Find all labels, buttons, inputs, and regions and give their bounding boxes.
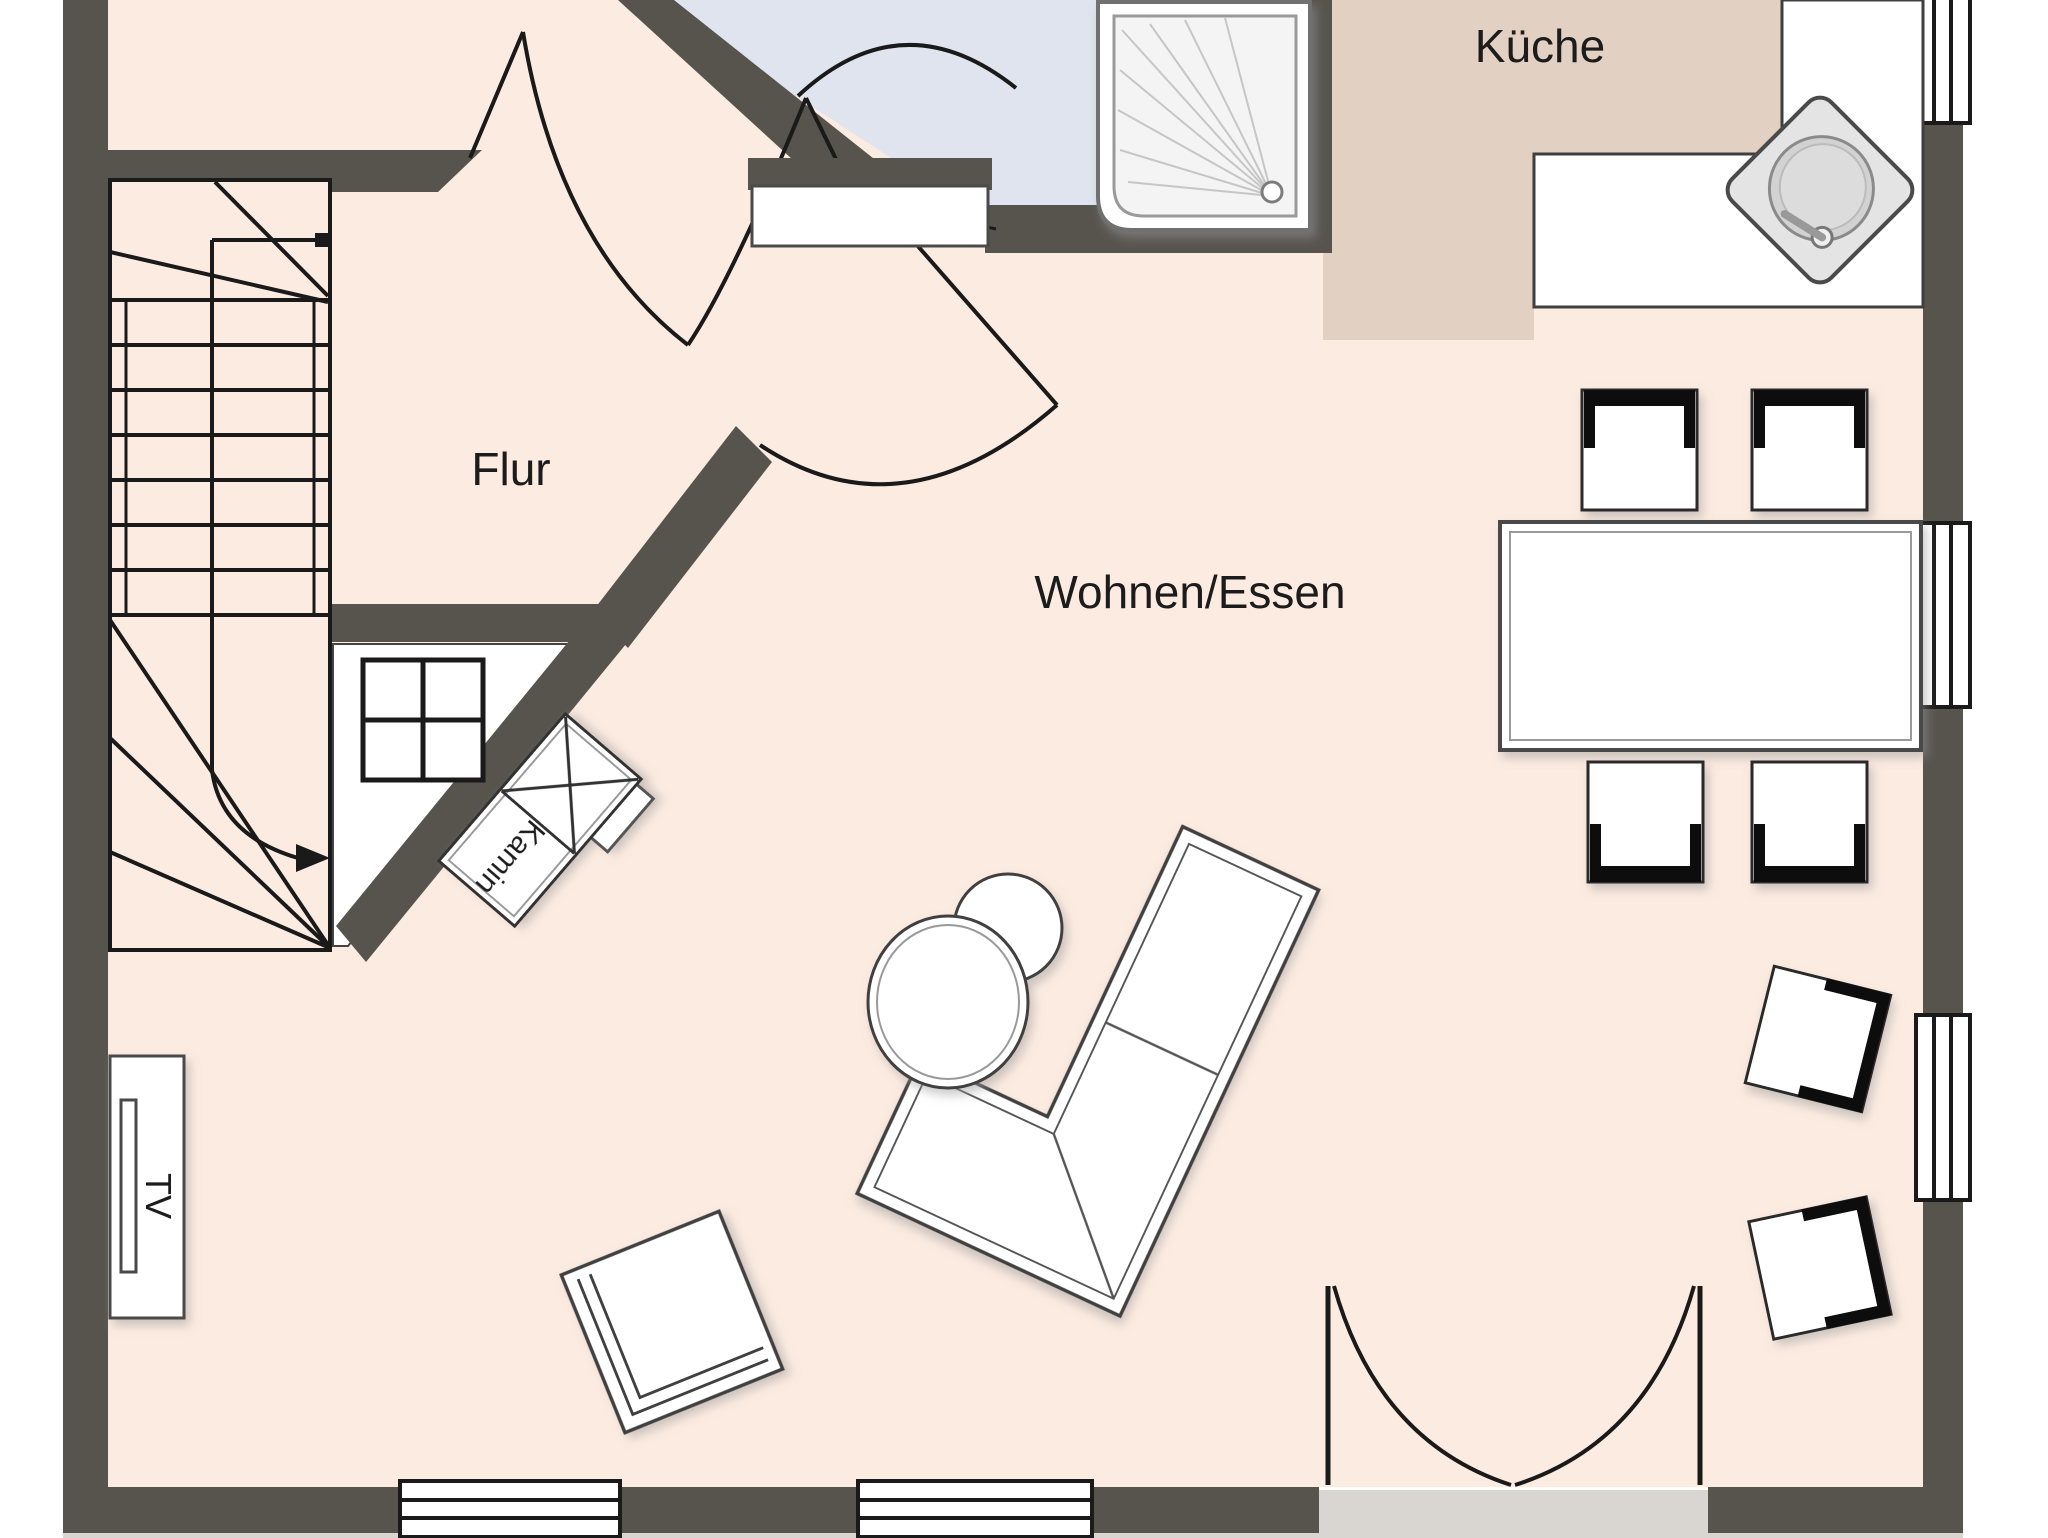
wall-left: [63, 0, 108, 1533]
dining-table: [1500, 522, 1921, 750]
wall-bottom-right-segment: [1708, 1487, 1963, 1533]
dining-chair: [1752, 390, 1867, 510]
floorplan-drawing: Kamin TV Flur Küche Wohnen/Essen: [0, 0, 2048, 1538]
floorplan-canvas: Kamin TV Flur Küche Wohnen/Essen: [0, 0, 2048, 1538]
staircase: [110, 180, 330, 950]
tv-screen: [121, 1100, 136, 1272]
terrace-at-door: [1319, 1490, 1708, 1538]
kitchen-label: Küche: [1475, 20, 1605, 72]
dining-chair: [1588, 762, 1703, 882]
armchair-right-lower: [1749, 1197, 1891, 1339]
shower-drain: [1262, 182, 1282, 202]
dining-chair: [1752, 762, 1867, 882]
window-bottom-middle: [858, 1481, 1092, 1537]
shaft-symbol: [363, 660, 483, 780]
wall-bottom-left-segment: [63, 1487, 1319, 1533]
wall-utility-north: [330, 604, 612, 642]
vestibule-sideboard: [748, 158, 992, 246]
window-right-dining: [1916, 523, 1970, 707]
living-dining-label: Wohnen/Essen: [1034, 566, 1345, 618]
tv-label: TV: [138, 1173, 179, 1219]
hallway-label: Flur: [471, 443, 550, 495]
window-right-lower: [1916, 1015, 1970, 1200]
wall-right: [1923, 0, 1963, 1533]
tv-sideboard: TV: [110, 1056, 184, 1318]
shower: [1098, 2, 1310, 230]
dining-chair: [1582, 390, 1697, 510]
coffee-table-large: [868, 916, 1028, 1088]
window-bottom-left: [400, 1481, 620, 1537]
